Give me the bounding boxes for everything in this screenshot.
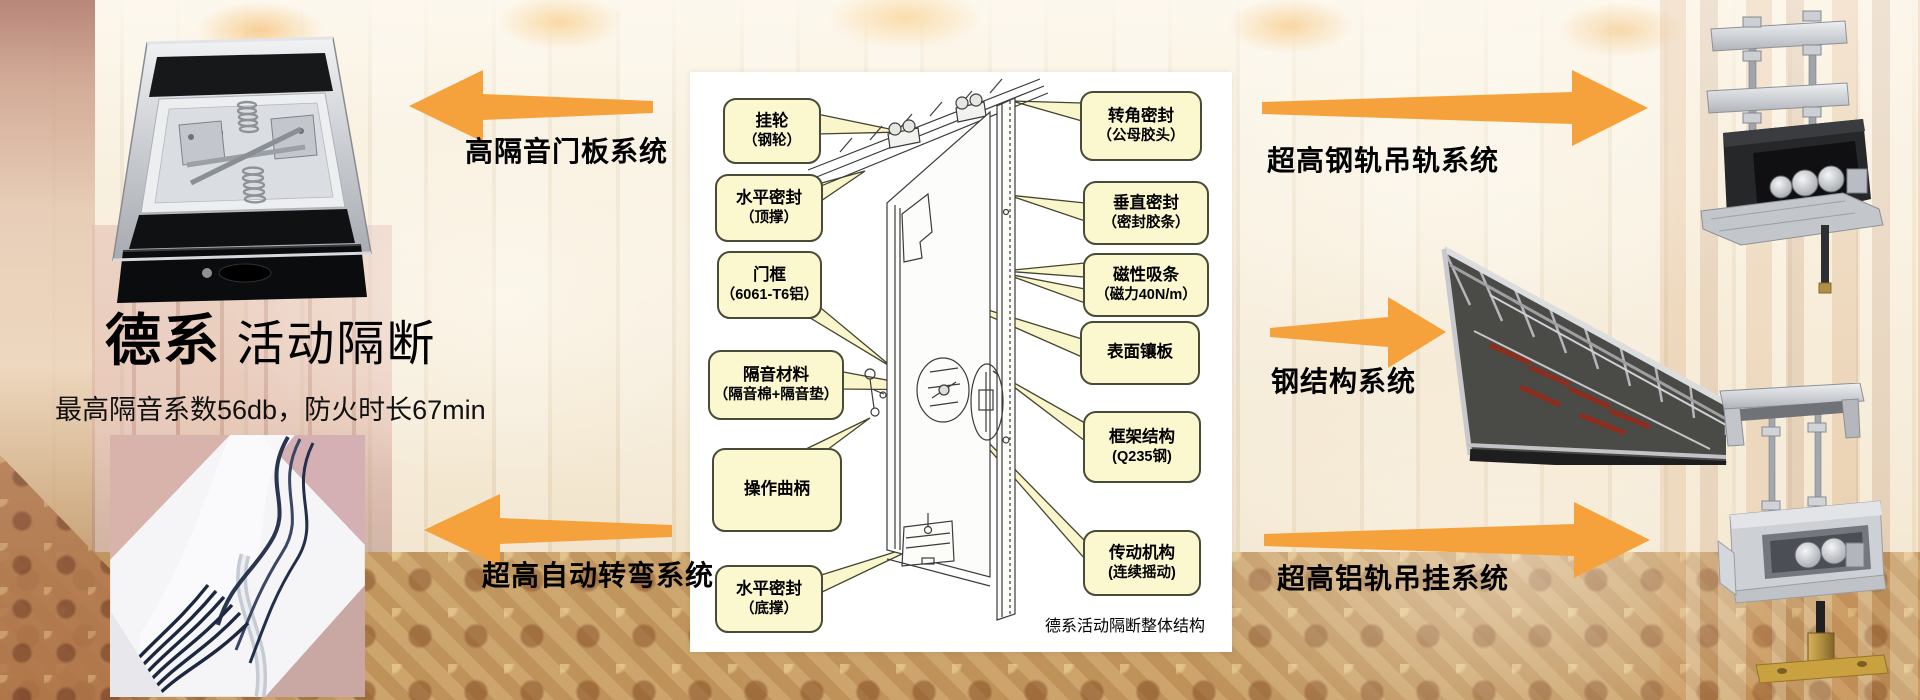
callout-corner-seal: 转角密封 （公母胶头） xyxy=(1080,91,1202,161)
brand-subtitle: 最高隔音系数56db，防火时长67min xyxy=(55,388,486,427)
callout-magnetic-strip: 磁性吸条 （磁力40N/m） xyxy=(1083,253,1209,317)
callout-line2: (Q235钢) xyxy=(1112,448,1172,467)
brand-title-bold: 德系 xyxy=(105,309,221,372)
door-seal-unit-photo xyxy=(95,5,385,310)
label-steel-structure-system: 钢结构系统 xyxy=(1271,360,1416,400)
brand-title: 德系 活动隔断 xyxy=(105,296,436,377)
callout-line1: 转角密封 xyxy=(1108,106,1174,127)
diagram-panel: 挂轮 （钢轮） 水平密封 （顶撑） 门框 （6061-T6铝） 隔音材料 （隔音… xyxy=(690,72,1232,652)
callout-frame-structure: 框架结构 (Q235钢) xyxy=(1083,411,1201,483)
brand-title-rest: 活动隔断 xyxy=(221,318,436,371)
callout-vertical-seal: 垂直密封 （密封胶条） xyxy=(1083,181,1209,245)
arrow-right-top-icon xyxy=(1260,68,1652,148)
callout-door-frame: 门框 （6061-T6铝） xyxy=(717,251,822,319)
callout-line1: 框架结构 xyxy=(1109,427,1175,448)
callout-line2: （钢轮） xyxy=(743,132,801,151)
label-steel-rail-system: 超高钢轨吊轨系统 xyxy=(1267,139,1499,179)
callout-surface-panel: 表面镶板 xyxy=(1080,321,1200,385)
callout-line1: 挂轮 xyxy=(756,111,789,132)
callout-line2: （6061-T6铝） xyxy=(721,286,819,305)
callout-line1: 垂直密封 xyxy=(1113,193,1179,214)
callout-drive-mechanism: 传动机构 (连续摇动) xyxy=(1083,530,1201,596)
callout-line1: 表面镶板 xyxy=(1107,342,1173,363)
steel-structure-photo xyxy=(1430,235,1730,465)
label-auto-turn-system: 超高自动转弯系统 xyxy=(482,554,714,594)
callout-line2: (连续摇动) xyxy=(1108,564,1176,583)
label-door-panel-system: 高隔音门板系统 xyxy=(465,130,668,170)
callout-line1: 门框 xyxy=(753,265,786,286)
alu-rail-hanger-photo xyxy=(1700,383,1910,690)
callout-bottom-seal: 水平密封 （底撑） xyxy=(715,565,823,633)
callout-line2: （隔音棉+隔音垫） xyxy=(714,386,838,405)
callout-crank-handle: 操作曲柄 xyxy=(712,448,842,532)
callout-line2: （密封胶条） xyxy=(1103,214,1190,233)
callout-line2: （公母胶头） xyxy=(1098,127,1185,146)
callout-line1: 磁性吸条 xyxy=(1113,265,1179,286)
alu-rail-hanger-graphic xyxy=(1700,383,1910,690)
arrow-right-middle-icon xyxy=(1268,295,1448,370)
callout-sound-insulation: 隔音材料 （隔音棉+隔音垫） xyxy=(708,350,844,420)
callout-line1: 水平密封 xyxy=(736,188,802,209)
label-alu-rail-system: 超高铝轨吊挂系统 xyxy=(1277,557,1509,597)
curved-track-graphic xyxy=(110,435,365,697)
door-seal-unit-graphic xyxy=(95,5,385,310)
slide: 德系 活动隔断 最高隔音系数56db，防火时长67min xyxy=(0,0,1920,700)
curved-track-photo xyxy=(110,435,365,697)
callout-line2: （底撑） xyxy=(740,600,798,619)
diagram-caption: 德系活动隔断整体结构 xyxy=(1036,612,1214,636)
steel-structure-graphic xyxy=(1430,235,1730,465)
callout-hanging-wheel: 挂轮 （钢轮） xyxy=(723,98,821,164)
callout-line2: （磁力40N/m） xyxy=(1095,286,1197,305)
callout-line1: 隔音材料 xyxy=(743,365,809,386)
callout-top-seal: 水平密封 （顶撑） xyxy=(715,174,823,242)
callout-line2: （顶撑） xyxy=(740,209,798,228)
callout-line1: 传动机构 xyxy=(1109,543,1175,564)
callout-line1: 操作曲柄 xyxy=(744,479,810,500)
callout-line1: 水平密封 xyxy=(736,579,802,600)
